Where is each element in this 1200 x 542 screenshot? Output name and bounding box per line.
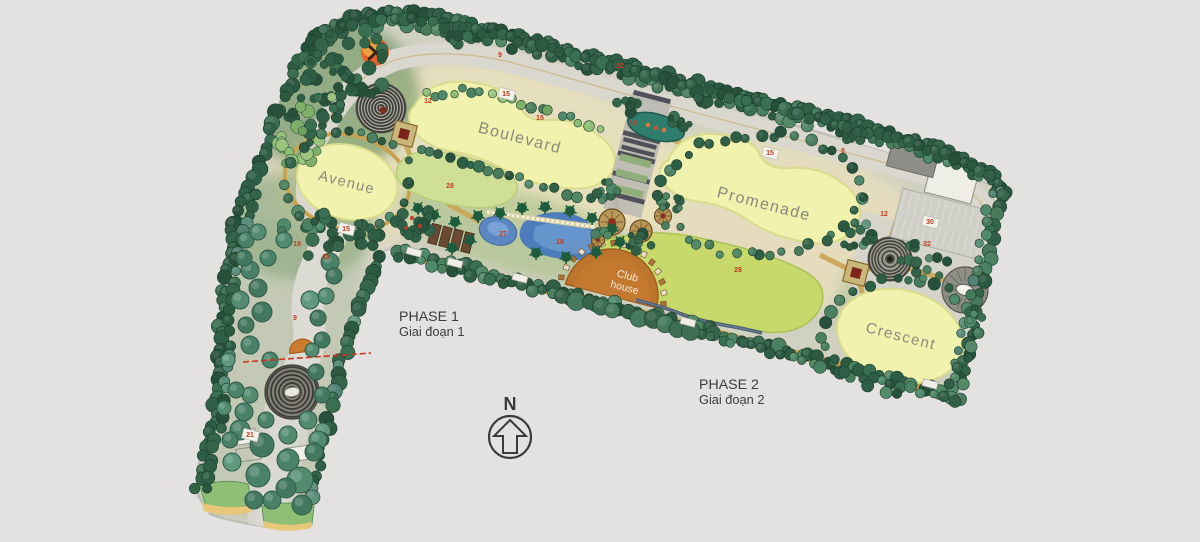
svg-text:28: 28 <box>734 267 742 274</box>
svg-text:12: 12 <box>424 98 432 105</box>
svg-text:32: 32 <box>923 241 931 248</box>
svg-text:27: 27 <box>499 231 507 238</box>
svg-text:30: 30 <box>926 219 934 226</box>
svg-text:15: 15 <box>322 254 330 261</box>
svg-text:8: 8 <box>841 148 845 155</box>
svg-text:PHASE 1: PHASE 1 <box>399 309 459 325</box>
svg-text:N: N <box>504 394 517 414</box>
svg-text:Giai đoạn 1: Giai đoạn 1 <box>399 324 464 339</box>
svg-text:15: 15 <box>502 91 510 98</box>
svg-text:18: 18 <box>556 239 564 246</box>
svg-text:15: 15 <box>342 226 350 233</box>
svg-text:28: 28 <box>446 183 454 190</box>
svg-text:9: 9 <box>293 315 297 322</box>
svg-text:12: 12 <box>880 211 888 218</box>
svg-text:PHASE 2: PHASE 2 <box>699 377 759 393</box>
svg-text:15: 15 <box>766 150 774 157</box>
svg-text:15: 15 <box>629 120 637 127</box>
svg-text:21: 21 <box>246 432 254 439</box>
svg-text:Giai đoạn 2: Giai đoạn 2 <box>699 392 764 407</box>
svg-text:12: 12 <box>616 63 624 70</box>
svg-text:18: 18 <box>293 241 301 248</box>
svg-text:15: 15 <box>536 115 544 122</box>
svg-text:9: 9 <box>498 52 502 59</box>
